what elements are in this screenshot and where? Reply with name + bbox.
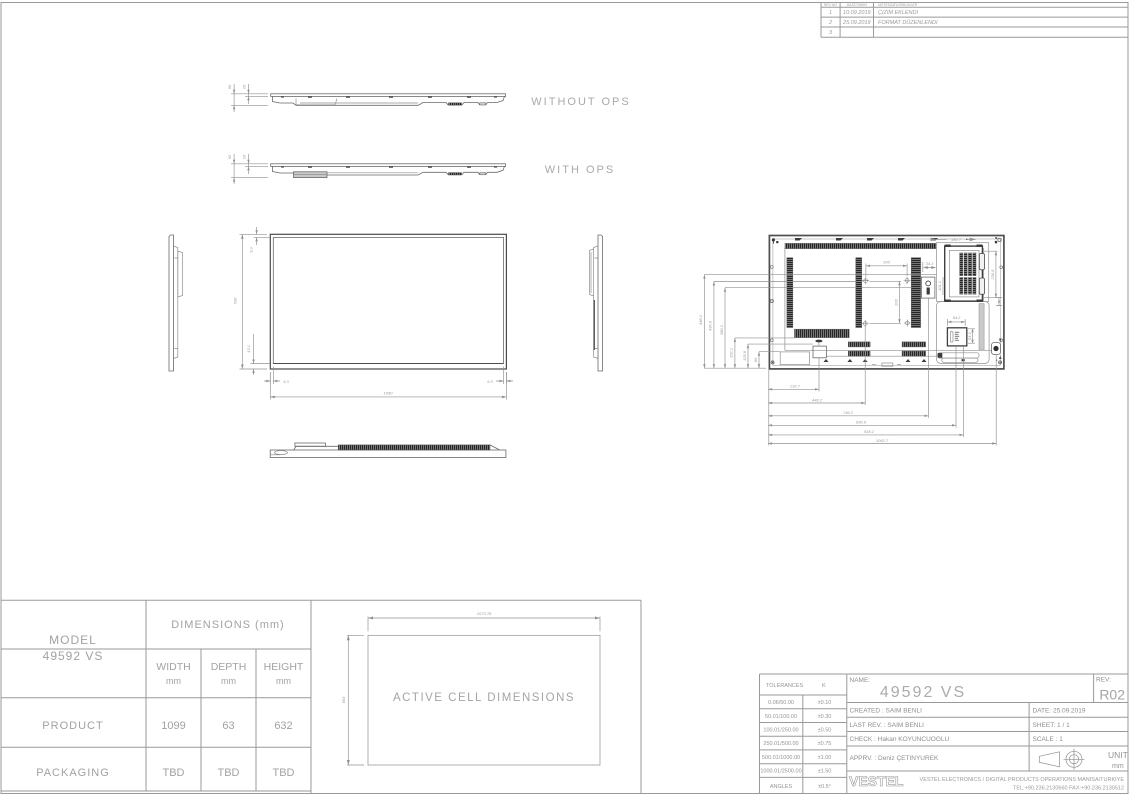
- svg-text:49592 VS: 49592 VS: [880, 684, 966, 701]
- svg-text:16: 16: [242, 84, 247, 89]
- svg-text:DIMENSIONS (mm): DIMENSIONS (mm): [171, 619, 284, 631]
- svg-text:200: 200: [882, 260, 890, 265]
- svg-text:152.1: 152.1: [729, 348, 734, 358]
- svg-text:±0.30: ±0.30: [818, 714, 832, 720]
- svg-text:±1.50: ±1.50: [818, 769, 832, 775]
- svg-text:DEPTH: DEPTH: [211, 661, 247, 673]
- svg-text:746.2: 746.2: [843, 410, 854, 415]
- svg-text:81.1: 81.1: [967, 332, 972, 340]
- svg-text:APPRV. : Deniz ÇETINYUREK: APPRV. : Deniz ÇETINYUREK: [850, 755, 940, 762]
- svg-text:604: 604: [341, 696, 346, 703]
- svg-text:NAME:: NAME:: [850, 677, 871, 684]
- svg-text:25.09.2019: 25.09.2019: [842, 20, 871, 26]
- svg-text:mm: mm: [166, 676, 181, 686]
- svg-text:250.01/500.00: 250.01/500.00: [763, 741, 798, 747]
- svg-text:TBD: TBD: [218, 767, 240, 779]
- svg-text:MODEL: MODEL: [49, 633, 97, 647]
- svg-text:NOTES/DEGISIKLIKLER: NOTES/DEGISIKLIKLER: [878, 3, 918, 7]
- svg-text:1: 1: [829, 10, 832, 16]
- svg-text:180.7: 180.7: [951, 237, 962, 242]
- svg-text:1073.78: 1073.78: [477, 611, 492, 616]
- svg-text:WIDTH: WIDTH: [156, 661, 190, 673]
- svg-text:PACKAGING: PACKAGING: [36, 767, 110, 779]
- svg-text:448.2: 448.2: [812, 397, 823, 402]
- svg-text:ÇIZIM EKLENDI: ÇIZIM EKLENDI: [878, 10, 919, 16]
- svg-text:CREATED : SAIM BENLI: CREATED : SAIM BENLI: [850, 708, 923, 715]
- svg-text:VESTEL: VESTEL: [849, 773, 904, 789]
- svg-text:9.3: 9.3: [487, 379, 493, 384]
- svg-text:836.9: 836.9: [856, 420, 867, 425]
- svg-text:FORMAT DÜZENLENDI: FORMAT DÜZENLENDI: [878, 19, 938, 26]
- svg-text:232.7: 232.7: [789, 384, 801, 389]
- svg-text:632: 632: [274, 720, 292, 732]
- svg-text:SCALE : 1: SCALE : 1: [1033, 736, 1064, 743]
- svg-text:500.01/1000.00: 500.01/1000.00: [762, 755, 800, 761]
- svg-text:96: 96: [753, 357, 758, 362]
- svg-text:9.3: 9.3: [249, 246, 254, 252]
- svg-text:380.1: 380.1: [719, 325, 724, 335]
- svg-text:1000.01/2500.00: 1000.01/2500.00: [760, 769, 801, 775]
- svg-text:DATE/TARIH: DATE/TARIH: [847, 3, 868, 7]
- svg-text:436.6: 436.6: [708, 320, 713, 331]
- svg-text:49592 VS: 49592 VS: [43, 649, 104, 663]
- svg-text:125.8: 125.8: [742, 350, 747, 361]
- svg-text:63: 63: [222, 720, 234, 732]
- svg-text:ANGLES: ANGLES: [770, 784, 793, 790]
- svg-text:WITHOUT OPS: WITHOUT OPS: [531, 96, 630, 108]
- svg-text:SHEET: 1 / 1: SHEET: 1 / 1: [1033, 722, 1071, 729]
- svg-text:13.1: 13.1: [246, 345, 251, 353]
- svg-text:mm: mm: [221, 676, 236, 686]
- svg-text:CHECK : Hakan KOYUNCUOGLU: CHECK : Hakan KOYUNCUOGLU: [850, 736, 950, 743]
- svg-text:0.06/50.00: 0.06/50.00: [768, 700, 794, 706]
- svg-text:UNIT: UNIT: [1108, 750, 1128, 760]
- svg-text:101.1: 101.1: [937, 281, 942, 291]
- svg-text:mm: mm: [1112, 763, 1124, 770]
- svg-text:10.09.2019: 10.09.2019: [843, 10, 871, 16]
- svg-text:TEL:+90.236.2130660 FAX:+90.23: TEL:+90.236.2130660 FAX:+90.236.2130512: [1013, 786, 1124, 792]
- svg-text:16: 16: [242, 154, 247, 159]
- svg-text:VESTEL ELECTRONICS / DIGITAL P: VESTEL ELECTRONICS / DIGITAL PRODUCTS OP…: [920, 777, 1125, 783]
- svg-text:62: 62: [227, 154, 232, 159]
- svg-text:DATE: 25.09.2019: DATE: 25.09.2019: [1033, 708, 1086, 715]
- svg-text:1099: 1099: [161, 720, 185, 732]
- svg-text:34.3: 34.3: [926, 261, 935, 266]
- svg-text:mm: mm: [276, 676, 291, 686]
- svg-text:630: 630: [233, 297, 238, 304]
- svg-text:50: 50: [227, 84, 232, 89]
- svg-text:TBD: TBD: [273, 767, 295, 779]
- svg-text:±0.5°: ±0.5°: [818, 784, 831, 790]
- svg-text:1090: 1090: [384, 391, 394, 396]
- svg-text:TBD: TBD: [163, 767, 185, 779]
- svg-text:94.2: 94.2: [953, 315, 962, 320]
- svg-text:REV:: REV:: [1096, 677, 1111, 684]
- svg-text:±1.00: ±1.00: [818, 755, 832, 761]
- svg-text:918.2: 918.2: [864, 429, 875, 434]
- svg-text:±0.10: ±0.10: [818, 700, 832, 706]
- svg-text:±0.50: ±0.50: [818, 728, 832, 734]
- svg-text:±0.75: ±0.75: [818, 741, 832, 747]
- svg-text:100.01/250.00: 100.01/250.00: [763, 728, 798, 734]
- svg-text:9.3: 9.3: [283, 379, 289, 384]
- svg-text:50.01/100.00: 50.01/100.00: [765, 714, 797, 720]
- svg-text:ACTIVE CELL DIMENSIONS: ACTIVE CELL DIMENSIONS: [393, 692, 575, 704]
- svg-text:3: 3: [829, 30, 833, 36]
- svg-text:1062.7: 1062.7: [876, 438, 889, 443]
- svg-text:REV.NO: REV.NO: [824, 3, 837, 7]
- svg-text:TOLERANCES: TOLERANCES: [766, 683, 804, 689]
- svg-text:LAST REV. : SAIM BENLI: LAST REV. : SAIM BENLI: [850, 722, 925, 729]
- svg-text:K: K: [822, 683, 826, 689]
- svg-text:WITH OPS: WITH OPS: [545, 164, 615, 176]
- svg-text:2: 2: [828, 20, 832, 26]
- svg-text:230.8: 230.8: [990, 269, 995, 281]
- svg-text:PRODUCT: PRODUCT: [42, 720, 103, 732]
- svg-text:R02: R02: [1099, 687, 1125, 703]
- svg-text:HEIGHT: HEIGHT: [264, 661, 304, 673]
- svg-text:200: 200: [894, 298, 899, 306]
- svg-text:448.1: 448.1: [698, 315, 703, 325]
